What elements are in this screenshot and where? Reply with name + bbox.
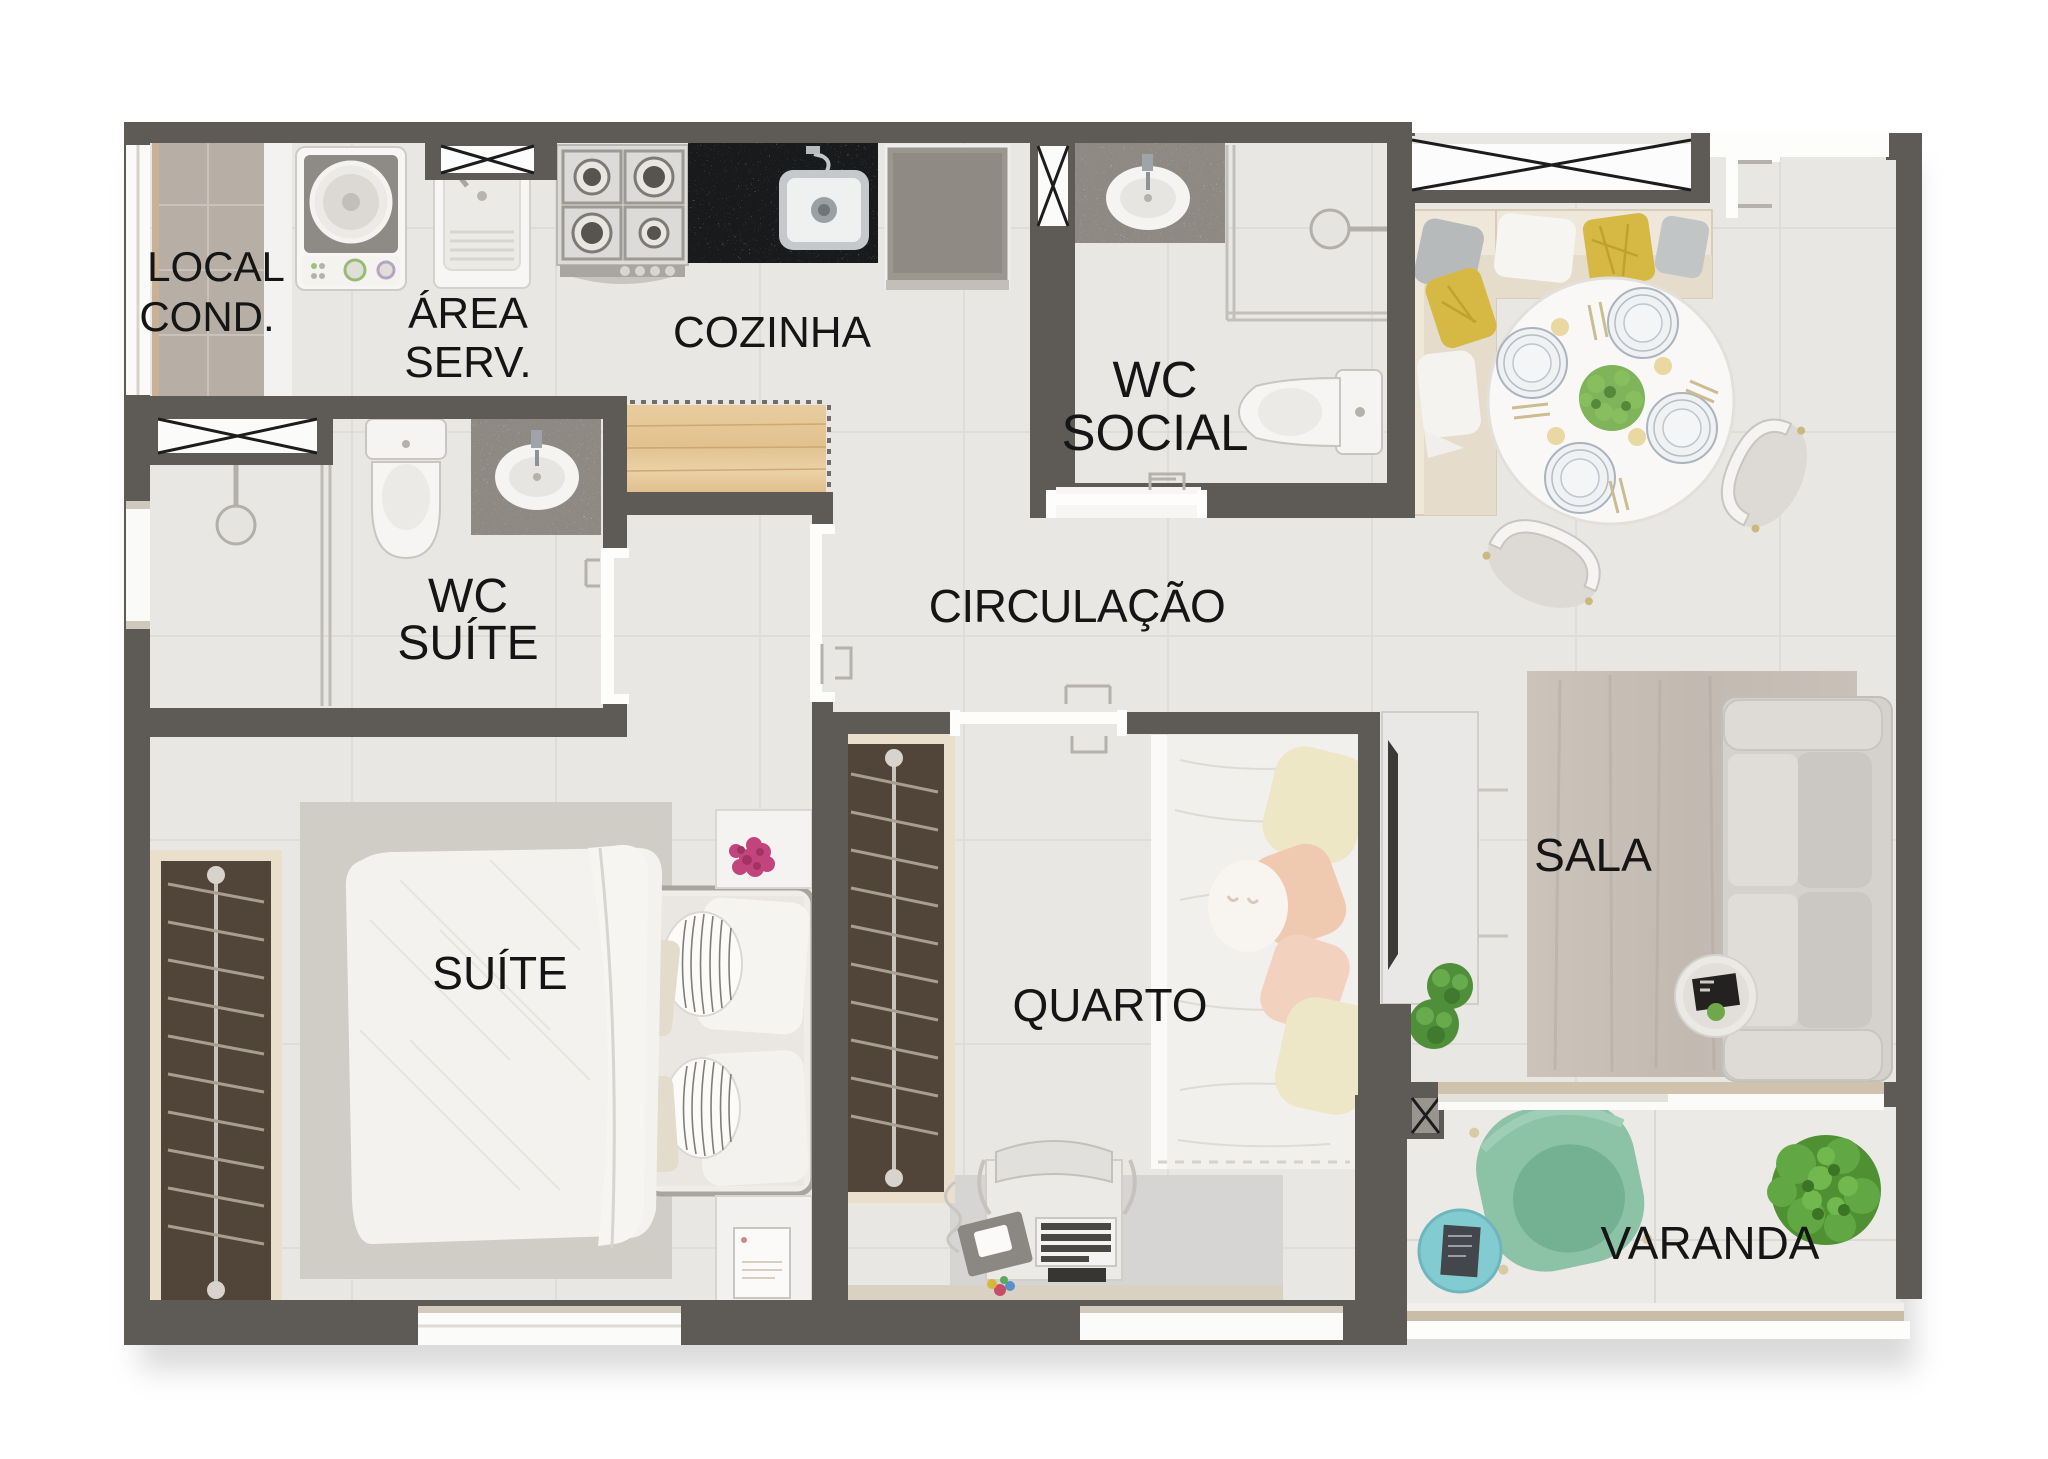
svg-text:VARANDA: VARANDA [1601,1217,1820,1269]
svg-text:COZINHA: COZINHA [673,308,872,357]
svg-text:COND.: COND. [139,293,274,340]
svg-text:WC: WC [428,570,508,623]
svg-text:CIRCULAÇÃO: CIRCULAÇÃO [929,580,1226,632]
svg-text:SUÍTE: SUÍTE [397,617,538,670]
svg-text:ÁREA: ÁREA [408,289,528,338]
svg-text:SUÍTE: SUÍTE [432,947,567,999]
svg-text:SERV.: SERV. [404,338,531,387]
svg-text:WC: WC [1113,351,1198,408]
svg-text:SOCIAL: SOCIAL [1061,404,1248,461]
svg-text:LOCAL: LOCAL [147,243,285,290]
svg-text:QUARTO: QUARTO [1012,979,1207,1031]
svg-text:SALA: SALA [1534,829,1652,881]
